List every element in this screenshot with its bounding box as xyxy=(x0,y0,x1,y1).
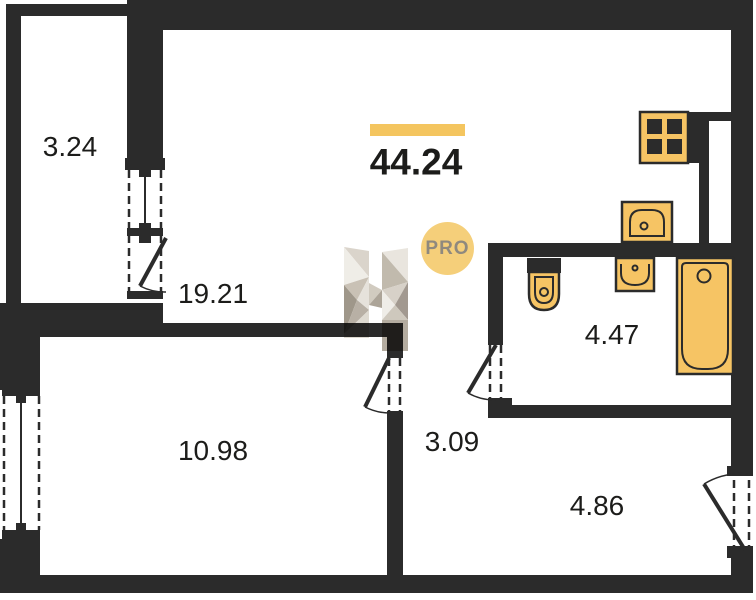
toilet-icon xyxy=(527,258,561,310)
entrance-door xyxy=(704,474,749,550)
room-label-bedroom: 10.98 xyxy=(178,437,248,465)
watermark-logo xyxy=(344,247,408,351)
bedroom-window xyxy=(2,387,40,539)
total-area-label: 44.24 xyxy=(370,144,463,181)
plan-graphics xyxy=(0,0,756,600)
kitchen-sink-icon xyxy=(622,202,672,242)
room-label-balcony: 3.24 xyxy=(43,133,98,161)
stove-icon xyxy=(640,112,688,163)
room-label-bathroom: 4.47 xyxy=(585,321,640,349)
bedroom-door xyxy=(365,358,400,413)
room-label-entry: 4.86 xyxy=(570,492,625,520)
bathroom-door xyxy=(468,345,501,400)
pro-badge: PRO xyxy=(421,222,474,275)
floor-plan-canvas: PRO 44.24 3.24 19.21 10.98 3.09 4.47 4.8… xyxy=(0,0,756,600)
bathtub-icon xyxy=(677,258,733,374)
room-label-living: 19.21 xyxy=(178,280,248,308)
washbasin-icon xyxy=(616,258,654,291)
room-label-hallway: 3.09 xyxy=(425,428,480,456)
total-area-bar xyxy=(370,124,465,136)
